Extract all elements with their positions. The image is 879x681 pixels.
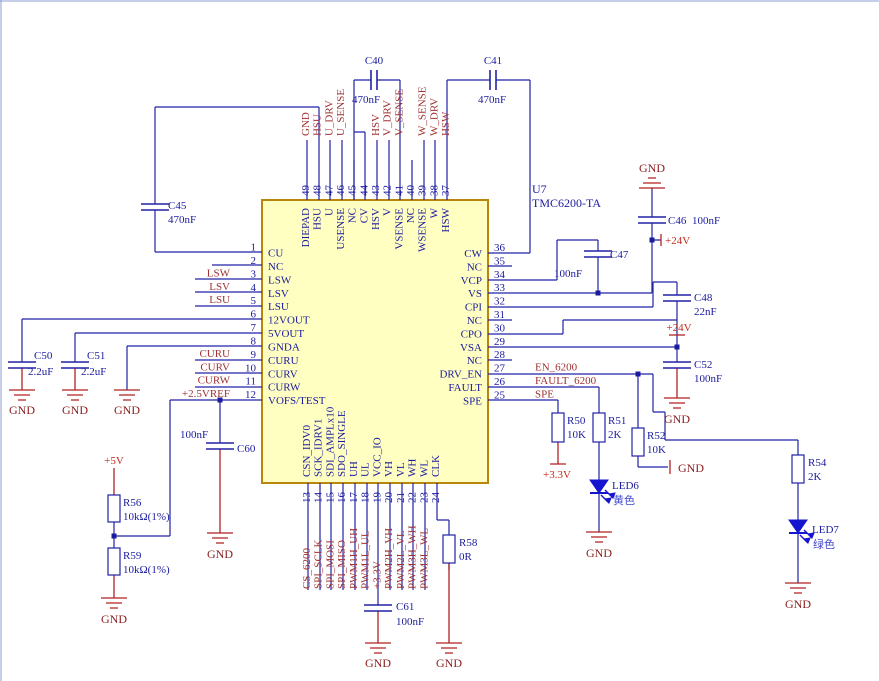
pin-name-35: NC: [467, 261, 482, 273]
pin-name-7: 5VOUT: [268, 328, 304, 340]
r52-ref: R52: [647, 430, 665, 442]
pin-number-2: 2: [251, 255, 257, 267]
pin-name-49: DIEPAD: [300, 208, 312, 247]
net-label-4: LSV: [209, 281, 230, 293]
pin-name-1: CU: [268, 248, 283, 260]
net-label-10: CURV: [200, 361, 230, 373]
pin-number-30: 30: [494, 322, 506, 334]
p5v-label: +5V: [104, 455, 124, 467]
pin-number-37: 37: [440, 185, 452, 197]
resistor-body-r52: [632, 428, 644, 456]
net-label-47: U_DRV: [323, 100, 335, 136]
net-label-18: PWM1L_UL: [360, 530, 372, 589]
net-label-20: PWM2H_VH: [383, 528, 395, 589]
r50-ref: R50: [567, 415, 586, 427]
pin-name-10: CURV: [268, 368, 298, 380]
pin-number-32: 32: [494, 296, 505, 308]
pin-number-11: 11: [245, 376, 256, 388]
pin-name-30: CPO: [461, 328, 482, 340]
pin-name-4: LSV: [268, 288, 289, 300]
pin-name-34: VCP: [461, 275, 482, 287]
net-label-42: V_DRV: [382, 100, 394, 136]
pin-name-22: WH: [407, 459, 419, 477]
pin-name-11: CURW: [268, 382, 301, 394]
gnd-label-r59: GND: [101, 612, 127, 626]
pin-number-18: 18: [360, 492, 372, 504]
pin-number-22: 22: [407, 492, 419, 503]
pin-number-21: 21: [395, 492, 407, 503]
c48-value: 22nF: [694, 306, 717, 318]
net-label-26: FAULT_6200: [535, 375, 597, 387]
pin-name-18: UL: [360, 462, 372, 477]
led7-color-label: 绿色: [813, 537, 835, 551]
pin-name-21: VL: [395, 462, 407, 477]
pin-name-15: SDI_AMPLx10: [324, 406, 336, 477]
pin-number-45: 45: [347, 185, 359, 197]
r51-value: 2K: [608, 429, 622, 441]
r58-value: 0R: [459, 551, 473, 563]
pin-name-41: VSENSE: [393, 208, 405, 250]
net-label-9: CURU: [199, 348, 230, 360]
net-label-12: +2.5VREF: [182, 388, 230, 400]
r56-value: 10kΩ(1%): [123, 511, 170, 523]
led7-symbol: [789, 520, 814, 543]
resistor-body-r51: [593, 413, 605, 442]
c40-ref: C40: [365, 55, 384, 67]
pin-name-38: W: [428, 207, 440, 218]
pin-name-42: V: [382, 208, 394, 216]
gnd-label-r52: GND: [678, 461, 704, 475]
pin-number-6: 6: [251, 309, 257, 321]
pin-name-39: WSENSE: [417, 208, 429, 252]
pin-number-26: 26: [494, 376, 506, 388]
net-label-16: SPI_MISO: [336, 540, 348, 589]
net-label-14: SPI_SCLK: [313, 539, 325, 589]
pin-number-15: 15: [324, 492, 336, 504]
net-label-38: W_DRV: [428, 98, 440, 136]
pin-name-24: CLK: [430, 455, 442, 477]
net-label-46: U_SENSE: [335, 89, 347, 136]
c41-value: 470nF: [478, 94, 506, 106]
pin-name-48: HSU: [312, 208, 324, 230]
r58-ref: R58: [459, 537, 478, 549]
pin-number-19: 19: [371, 492, 383, 504]
schematic-canvas: C40 470nF C41 470nF C45 470nF C46 100nF …: [0, 0, 879, 681]
pin-name-13: CSN_IDV0: [301, 425, 313, 477]
pin-number-41: 41: [393, 185, 405, 196]
resistor-body-r54: [792, 455, 804, 483]
pin-name-8: GNDA: [268, 341, 300, 353]
pin-name-5: LSU: [268, 301, 289, 313]
net-label-48: HSU: [312, 114, 324, 136]
p24v-label-2: +24V: [666, 322, 691, 334]
pin-number-31: 31: [494, 309, 505, 321]
gnd-label-led7: GND: [785, 597, 811, 611]
pin-number-16: 16: [336, 492, 348, 504]
resistor-body-r50: [552, 413, 564, 442]
net-label-22: PWM3H_WH: [407, 525, 419, 589]
pin-name-31: NC: [467, 315, 482, 327]
pin-number-3: 3: [251, 268, 257, 280]
net-label-37: HSW: [440, 111, 452, 136]
pin-number-40: 40: [405, 185, 417, 197]
pin-number-17: 17: [348, 492, 360, 504]
pin-name-32: CPI: [465, 302, 482, 314]
pin-name-40: NC: [405, 208, 417, 223]
pin-number-13: 13: [301, 492, 313, 504]
pin-name-12: VOFS/TEST: [268, 395, 326, 407]
pin-name-27: DRV_EN: [439, 369, 482, 381]
r59-value: 10kΩ(1%): [123, 564, 170, 576]
gnd-label-r58: GND: [436, 656, 462, 670]
ic-ref: U7: [532, 182, 547, 196]
gnd-label-c51: GND: [62, 403, 88, 417]
c60-value: 100nF: [180, 429, 208, 441]
pin-name-36: CW: [464, 248, 482, 260]
pin-number-49: 49: [300, 185, 312, 197]
pin-number-4: 4: [251, 282, 257, 294]
r54-ref: R54: [808, 457, 827, 469]
net-label-23: PWM3L_WL: [418, 528, 430, 589]
p3v3-label: +3.3V: [543, 469, 571, 481]
pin-number-33: 33: [494, 282, 506, 294]
pin-number-34: 34: [494, 269, 506, 281]
gnd-label-c61: GND: [365, 656, 391, 670]
net-label-49: GND: [300, 112, 312, 136]
c61-value: 100nF: [396, 616, 424, 628]
c52-value: 100nF: [694, 373, 722, 385]
pin-number-9: 9: [251, 349, 257, 361]
pin-number-20: 20: [383, 492, 395, 504]
pin-number-42: 42: [382, 185, 394, 196]
c51-ref: C51: [87, 350, 105, 362]
c60-ref: C60: [237, 443, 256, 455]
pin-number-47: 47: [323, 185, 335, 197]
pin-name-33: VS: [468, 288, 482, 300]
pin-number-24: 24: [430, 492, 442, 504]
pin-number-36: 36: [494, 242, 506, 254]
gnd-label-c60: GND: [207, 547, 233, 561]
resistor-body-r58: [443, 535, 455, 563]
r52-value: 10K: [647, 444, 666, 456]
ic-part: TMC6200-TA: [532, 196, 601, 210]
c47-ref: C47: [610, 249, 629, 261]
net-label-5: LSU: [209, 294, 230, 306]
resistor-body-r56: [108, 495, 120, 522]
r54-value: 2K: [808, 471, 822, 483]
pin-number-25: 25: [494, 389, 506, 401]
gnd-label-gnda: GND: [114, 403, 140, 417]
net-label-13: CS_6200: [301, 548, 313, 589]
gnd-label-led6: GND: [586, 546, 612, 560]
c48-ref: C48: [694, 292, 713, 304]
c41-ref: C41: [484, 55, 502, 67]
pin-name-46: USENSE: [335, 208, 347, 250]
pin-number-28: 28: [494, 349, 506, 361]
c47-value: 100nF: [554, 268, 582, 280]
pin-name-29: VSA: [460, 342, 482, 354]
net-label-15: SPI_MOSI: [324, 540, 336, 589]
net-label-43: HSV: [370, 114, 382, 136]
net-label-25: SPE: [535, 388, 554, 400]
pin-name-9: CURU: [268, 355, 299, 367]
pin-number-44: 44: [358, 185, 370, 197]
pin-name-14: SCK_IDRV1: [313, 419, 325, 477]
pin-name-17: UH: [348, 461, 360, 477]
c40-value: 470nF: [352, 94, 380, 106]
pin-name-44: CV: [358, 208, 370, 223]
pin-name-37: HSW: [440, 207, 452, 232]
net-label-19: +3.3V: [371, 561, 383, 589]
resistor-body-r59: [108, 548, 120, 575]
pin-number-5: 5: [251, 295, 257, 307]
pin-name-19: VCC_IO: [371, 437, 383, 477]
net-label-27: EN_6200: [535, 362, 578, 374]
pin-number-23: 23: [418, 492, 430, 504]
r50-value: 10K: [567, 429, 586, 441]
pin-name-28: NC: [467, 355, 482, 367]
net-label-21: PWM2L_VL: [395, 530, 407, 589]
pin-name-3: LSW: [268, 274, 292, 286]
pin-name-20: VH: [383, 461, 395, 477]
pin-number-8: 8: [251, 335, 257, 347]
pin-name-43: HSV: [370, 208, 382, 230]
pin-number-10: 10: [245, 362, 257, 374]
c52-ref: C52: [694, 359, 712, 371]
schematic-sheet: C40 470nF C41 470nF C45 470nF C46 100nF …: [0, 0, 879, 681]
r51-ref: R51: [608, 415, 626, 427]
pin-number-43: 43: [370, 185, 382, 197]
pin-number-7: 7: [251, 322, 257, 334]
pin-number-38: 38: [428, 185, 440, 197]
net-label-17: PWM1H_UH: [348, 528, 360, 589]
pin-name-23: WL: [418, 460, 430, 477]
pin-number-27: 27: [494, 363, 506, 375]
p24v-label-1: +24V: [665, 235, 690, 247]
pin-number-12: 12: [245, 389, 256, 401]
c46-ref: C46: [668, 215, 687, 227]
c46-value: 100nF: [692, 215, 720, 227]
net-label-3: LSW: [207, 267, 231, 279]
pin-number-14: 14: [313, 492, 325, 504]
led6-ref: LED6: [612, 480, 639, 492]
pin-number-46: 46: [335, 185, 347, 197]
pin-name-6: 12VOUT: [268, 315, 310, 327]
pin-name-47: U: [323, 208, 335, 216]
pin-name-25: SPE: [463, 395, 482, 407]
pin-name-45: NC: [347, 208, 359, 223]
c51-value: 2.2uF: [81, 366, 106, 378]
c50-value: 2.2uF: [28, 366, 53, 378]
pin-name-26: FAULT: [448, 382, 482, 394]
c45-value: 470nF: [168, 214, 196, 226]
pin-number-29: 29: [494, 336, 506, 348]
gnd-label-c52: GND: [664, 412, 690, 426]
net-label-41: V_SENSE: [393, 89, 405, 136]
pin-number-39: 39: [417, 185, 429, 197]
pin-number-48: 48: [312, 185, 324, 197]
gnd-label-c46: GND: [639, 161, 665, 175]
c45-ref: C45: [168, 200, 187, 212]
gnd-label-c50: GND: [9, 403, 35, 417]
pin-number-1: 1: [251, 242, 257, 254]
led7-ref: LED7: [812, 524, 839, 536]
r59-ref: R59: [123, 550, 142, 562]
led6-color-label: 黄色: [613, 493, 635, 507]
net-label-11: CURW: [198, 375, 231, 387]
r56-ref: R56: [123, 497, 142, 509]
pin-name-16: SDO_SINGLE: [336, 410, 348, 477]
pin-name-2: NC: [268, 261, 283, 273]
pin-number-35: 35: [494, 255, 506, 267]
net-label-39: W_SENSE: [417, 86, 429, 136]
c61-ref: C61: [396, 601, 414, 613]
c50-ref: C50: [34, 350, 53, 362]
